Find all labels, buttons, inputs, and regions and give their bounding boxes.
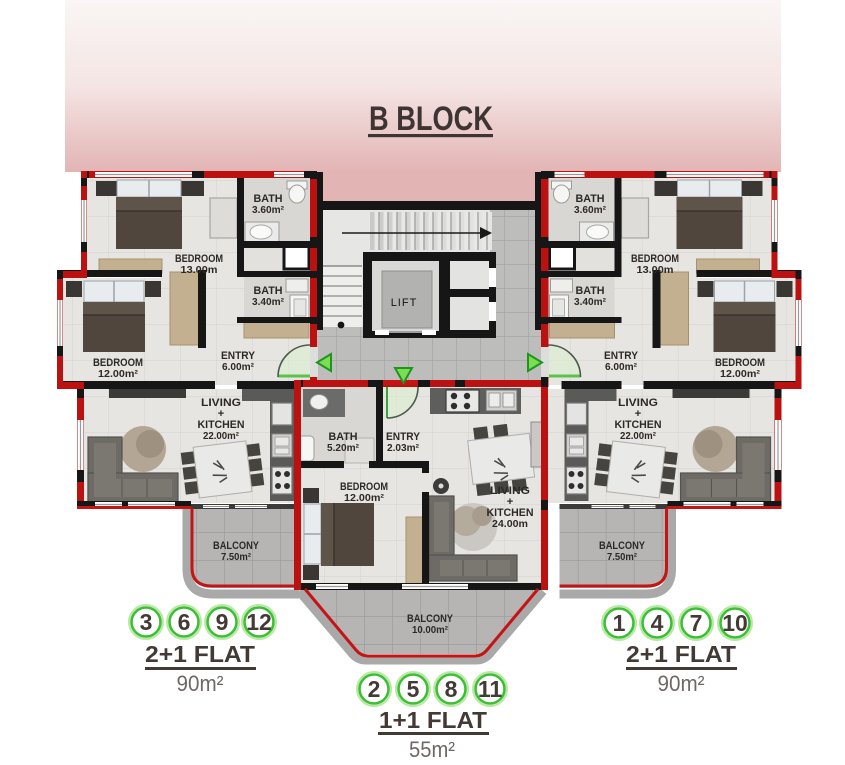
svg-text:3.40m²: 3.40m² — [574, 297, 607, 308]
svg-text:2: 2 — [368, 676, 381, 702]
svg-text:ENTRY: ENTRY — [604, 350, 639, 362]
svg-text:BALCONY: BALCONY — [407, 613, 454, 625]
svg-text:2+1 FLAT: 2+1 FLAT — [626, 641, 736, 667]
svg-text:LIFT: LIFT — [391, 297, 418, 309]
svg-text:5: 5 — [407, 676, 420, 702]
svg-text:KITCHEN: KITCHEN — [615, 419, 662, 431]
svg-text:2.03m²: 2.03m² — [387, 443, 420, 454]
svg-text:5.20m²: 5.20m² — [327, 443, 360, 454]
svg-text:6: 6 — [178, 609, 191, 635]
svg-text:55m²: 55m² — [409, 737, 455, 762]
svg-text:BEDROOM: BEDROOM — [93, 357, 143, 369]
svg-text:7.50m²: 7.50m² — [607, 552, 638, 563]
svg-text:3.40m²: 3.40m² — [252, 297, 285, 308]
svg-text:3.60m²: 3.60m² — [574, 205, 607, 216]
svg-text:3.60m²: 3.60m² — [252, 205, 285, 216]
svg-text:1+1 FLAT: 1+1 FLAT — [379, 707, 487, 733]
svg-text:BATH: BATH — [576, 285, 605, 297]
svg-text:12.00m²: 12.00m² — [98, 369, 139, 380]
svg-text:BALCONY: BALCONY — [599, 540, 646, 552]
svg-text:BATH: BATH — [254, 285, 283, 297]
svg-text:KITCHEN: KITCHEN — [487, 507, 534, 519]
svg-text:BEDROOM: BEDROOM — [340, 481, 388, 493]
svg-text:7.50m²: 7.50m² — [221, 552, 252, 563]
svg-text:6.00m²: 6.00m² — [605, 362, 638, 373]
svg-text:13.00m: 13.00m — [637, 265, 674, 276]
svg-text:4: 4 — [651, 610, 664, 636]
svg-text:1: 1 — [613, 610, 626, 636]
svg-text:8: 8 — [445, 676, 458, 702]
svg-text:11: 11 — [478, 676, 503, 702]
svg-text:6.00m²: 6.00m² — [222, 362, 255, 373]
svg-text:B BLOCK: B BLOCK — [369, 100, 493, 138]
svg-text:BATH: BATH — [254, 193, 283, 205]
svg-text:90m²: 90m² — [177, 671, 224, 696]
svg-text:BATH: BATH — [329, 431, 358, 443]
svg-text:BEDROOM: BEDROOM — [715, 357, 765, 369]
svg-text:10.00m²: 10.00m² — [412, 625, 449, 636]
svg-text:3: 3 — [140, 609, 153, 635]
svg-text:12.00m²: 12.00m² — [720, 369, 761, 380]
svg-text:2+1 FLAT: 2+1 FLAT — [145, 641, 255, 667]
svg-text:13.00m: 13.00m — [181, 265, 218, 276]
svg-text:24.00m: 24.00m — [492, 519, 528, 530]
svg-text:KITCHEN: KITCHEN — [198, 419, 245, 431]
svg-text:12: 12 — [246, 609, 272, 635]
svg-text:22.00m²: 22.00m² — [203, 431, 240, 442]
svg-text:12.00m²: 12.00m² — [344, 493, 385, 504]
svg-text:ENTRY: ENTRY — [221, 350, 256, 362]
svg-text:BALCONY: BALCONY — [213, 540, 260, 552]
svg-text:90m²: 90m² — [658, 671, 705, 696]
svg-text:7: 7 — [690, 610, 703, 636]
svg-text:BEDROOM: BEDROOM — [175, 253, 223, 265]
svg-text:BATH: BATH — [576, 193, 605, 205]
svg-text:BEDROOM: BEDROOM — [631, 253, 679, 265]
svg-text:22.00m²: 22.00m² — [620, 431, 657, 442]
svg-text:9: 9 — [216, 609, 229, 635]
svg-text:10: 10 — [722, 610, 748, 636]
svg-text:ENTRY: ENTRY — [386, 431, 421, 443]
